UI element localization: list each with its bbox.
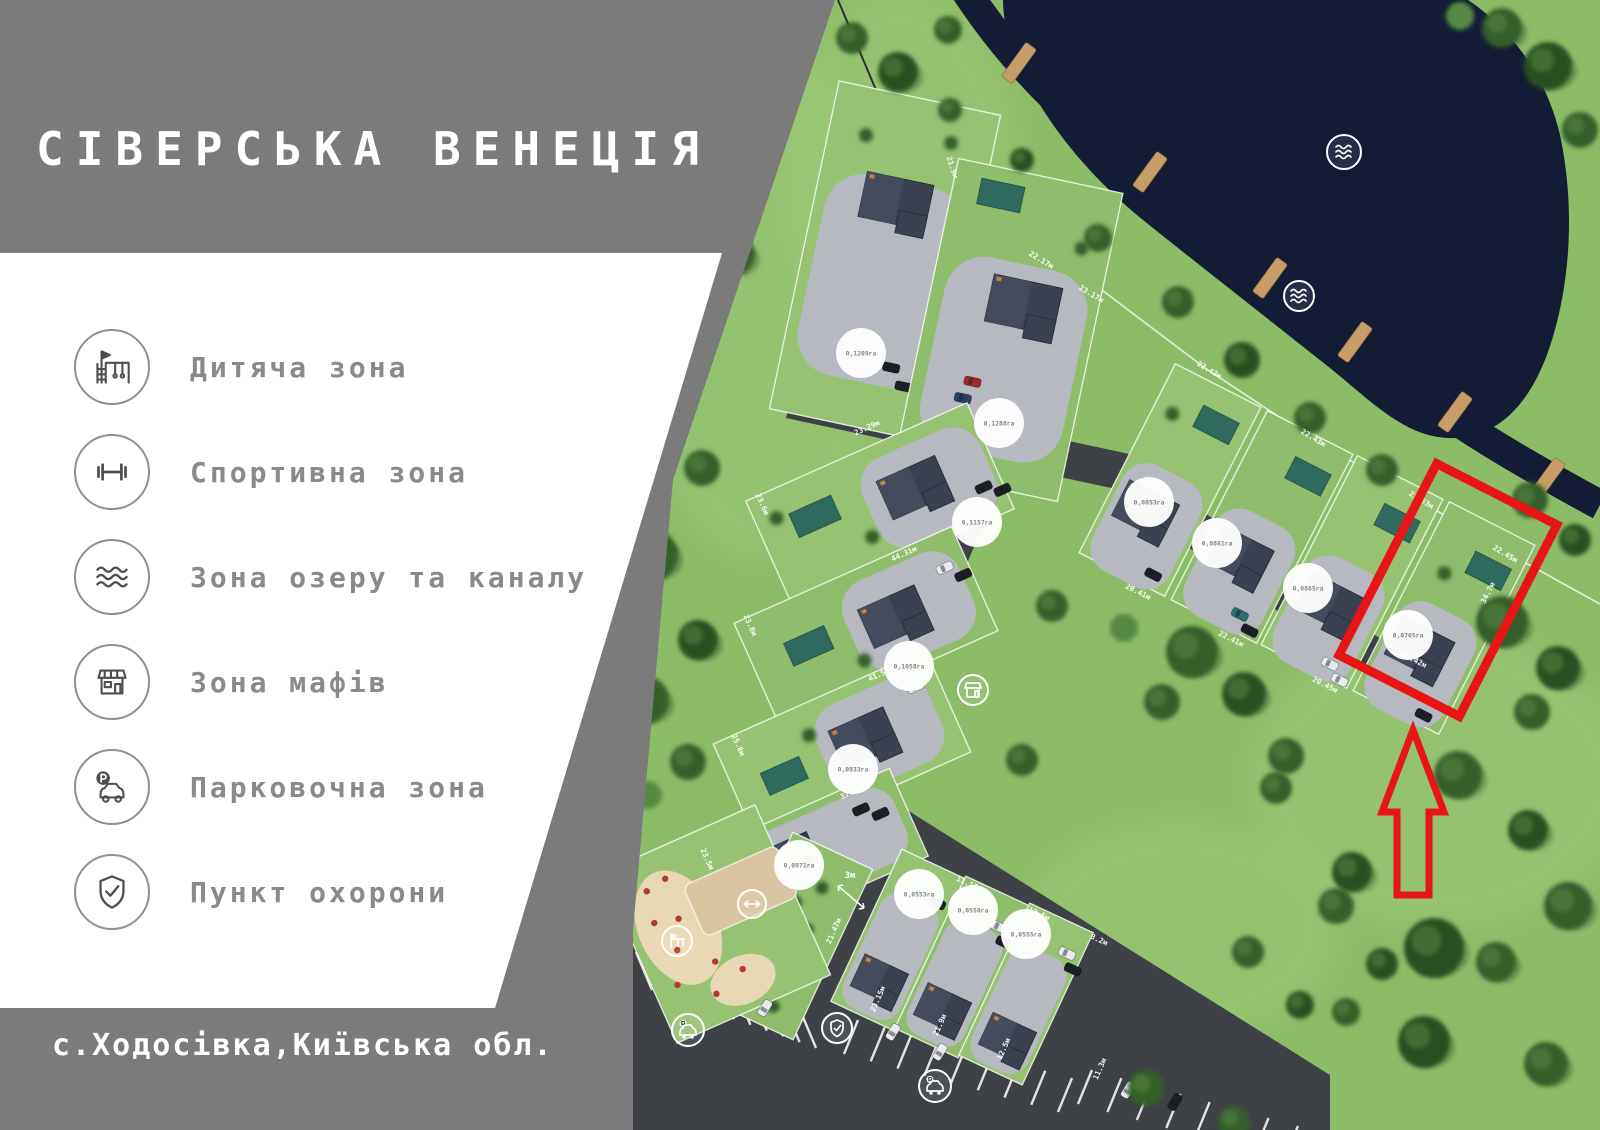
svg-text:0,0765га: 0,0765га [1393, 632, 1424, 640]
svg-text:0,0553га: 0,0553га [904, 891, 935, 899]
legend-row-security: Пункт охорони [74, 853, 634, 931]
legend-row-parking: Парковочна зона [74, 748, 634, 826]
legend-label: Пункт охорони [190, 876, 448, 909]
plot-area-label: 0,1288га [974, 398, 1024, 448]
arrows-map-icon [738, 890, 766, 918]
svg-text:0,0555га: 0,0555га [1011, 931, 1042, 939]
waves-icon [74, 539, 150, 615]
plot-area-label: 0,0550га [948, 885, 998, 935]
dumbbell-icon [74, 434, 150, 510]
site-plan-poster: 21.9м22.17м23.17м22.43м22.43м23.63м22.45… [0, 0, 1600, 1130]
svg-text:0,0550га: 0,0550га [958, 907, 989, 915]
parking-map-icon [672, 1014, 704, 1046]
plot-area-label: 0,1058га [884, 641, 934, 691]
shield-map-icon [822, 1013, 852, 1043]
legend: Дитяча зона Спортивна зона Зона озеру та… [74, 328, 634, 958]
svg-text:0,0933га: 0,0933га [838, 766, 869, 774]
plot-area-label: 0,0553га [894, 869, 944, 919]
waves-map-icon [1327, 135, 1361, 169]
plot-area-label: 0,0555га [1001, 909, 1051, 959]
shield-icon [74, 854, 150, 930]
plot-area-label: 0,1209га [836, 328, 886, 378]
legend-label: Спортивна зона [190, 456, 468, 489]
legend-label: Зона озеру та каналу [190, 561, 587, 594]
plot-area-label: 0,0853га [1124, 477, 1174, 527]
plot-area-label: 0,0865га [1283, 563, 1333, 613]
svg-text:0,1058га: 0,1058га [894, 663, 925, 671]
svg-text:0,1288га: 0,1288га [984, 420, 1015, 428]
legend-row-maf: Зона мафів [74, 643, 634, 721]
location-address: с.Ходосівка,Київська обл. [52, 1028, 554, 1063]
svg-text:0,0971га: 0,0971га [784, 862, 815, 870]
playground-map-icon [662, 926, 692, 956]
plot-area-label: 0,0861га [1192, 518, 1242, 568]
parking-map-icon [919, 1070, 951, 1102]
plot-area-label: 0,0765га [1383, 610, 1433, 660]
svg-text:0,1209га: 0,1209га [846, 350, 877, 358]
waves-map-icon [1284, 281, 1314, 311]
plot-area-label: 0,0933га [828, 744, 878, 794]
legend-label: Зона мафів [190, 666, 389, 699]
kiosk-icon [74, 644, 150, 720]
kiosk-map-icon [958, 675, 988, 705]
page-title: СІВЕРСЬКА ВЕНЕЦІЯ [36, 122, 711, 176]
svg-text:0,0865га: 0,0865га [1293, 585, 1324, 593]
playground-icon [74, 329, 150, 405]
svg-text:0,0861га: 0,0861га [1202, 540, 1233, 548]
legend-label: Парковочна зона [190, 771, 488, 804]
plot-area-label: 0,0971га [774, 840, 824, 890]
svg-text:0,1157га: 0,1157га [962, 519, 993, 527]
svg-text:3м: 3м [845, 871, 856, 881]
svg-text:0,0853га: 0,0853га [1134, 499, 1165, 507]
legend-row-lake: Зона озеру та каналу [74, 538, 634, 616]
parking-icon [74, 749, 150, 825]
legend-label: Дитяча зона [190, 351, 408, 384]
legend-row-sport: Спортивна зона [74, 433, 634, 511]
plot-area-label: 0,1157га [952, 497, 1002, 547]
legend-row-playground: Дитяча зона [74, 328, 634, 406]
